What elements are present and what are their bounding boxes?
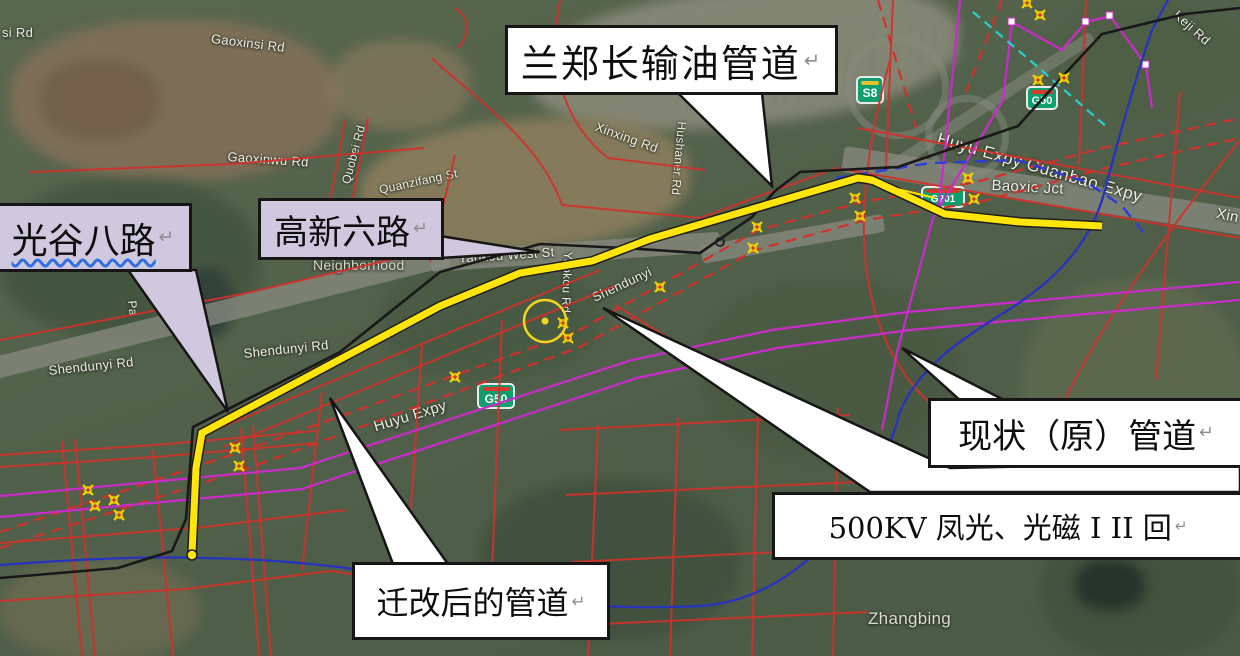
tail-guanggu-eighth-road xyxy=(128,270,228,412)
tail-relocated-pipeline xyxy=(330,398,448,564)
return-mark: ↵ xyxy=(804,49,823,72)
cyan-dashed-line xyxy=(973,12,1108,128)
callout-text: 现状（原）管道 xyxy=(958,409,1196,458)
callout-existing-pipeline[interactable]: 现状（原）管道↵ xyxy=(928,398,1240,468)
return-mark: ↵ xyxy=(159,227,175,248)
return-mark: ↵ xyxy=(1175,517,1188,535)
return-mark: ↵ xyxy=(572,592,586,611)
return-mark: ↵ xyxy=(1199,423,1214,443)
tail-existing-pipeline xyxy=(902,348,1008,402)
callout-text: 迁改后的管道 xyxy=(377,578,569,624)
callout-relocated-pipeline[interactable]: 迁改后的管道↵ xyxy=(352,562,610,640)
callout-text: 500KV 凤光、光磁 I II 回 xyxy=(829,505,1172,547)
return-mark: ↵ xyxy=(413,219,428,239)
callout-guanggu-eighth-road[interactable]: 光谷八路↵ xyxy=(0,203,192,272)
callout-text: 光谷八路 xyxy=(12,212,156,264)
callout-oil-pipeline[interactable]: 兰郑长输油管道↵ xyxy=(505,25,838,95)
tail-oil-pipeline xyxy=(678,93,772,186)
callout-text: 高新六路 xyxy=(274,205,410,254)
pipeline-endpoint-dot xyxy=(187,550,197,560)
annotated-satellite-map[interactable]: si Rd Gaoxinsi Rd Gaoxinwu Rd Quobei Rd … xyxy=(0,0,1240,656)
callout-power-line-500kv[interactable]: 500KV 凤光、光磁 I II 回↵ xyxy=(772,492,1240,560)
callout-gaoxin-sixth-road[interactable]: 高新六路↵ xyxy=(258,198,444,260)
callout-text: 兰郑长输油管道 xyxy=(521,33,801,88)
survey-circle-dot xyxy=(542,318,549,325)
